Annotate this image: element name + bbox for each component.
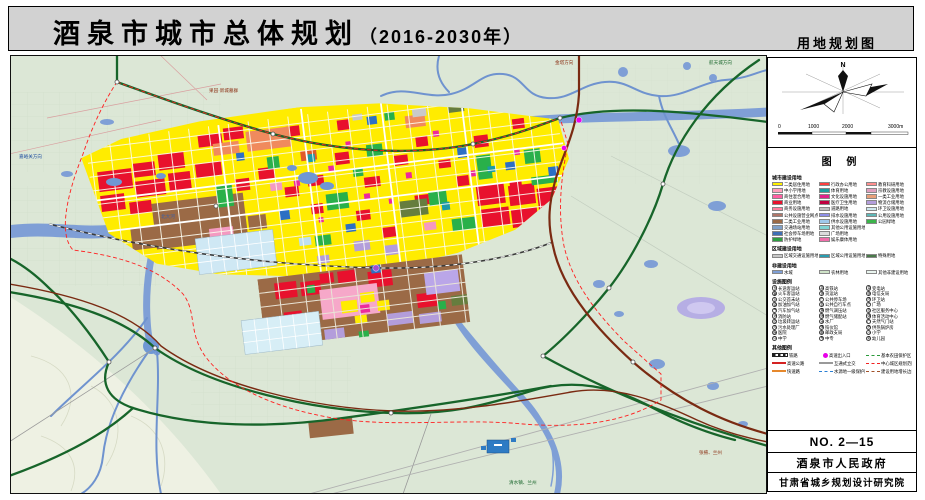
facility-icon: 幼 [866, 336, 871, 341]
legend-swatch [772, 237, 783, 242]
legend-item: 区域公用设施用地 [819, 253, 865, 259]
scale-tick-2: 2000 [842, 124, 853, 130]
line-sample [866, 355, 880, 356]
facility-icon: 油 [772, 302, 777, 307]
legend-item: 其他非建设用地 [866, 269, 912, 275]
nonconstruction-legend: 水域农林用地其他非建设用地 [772, 269, 912, 275]
map-label: 嘉峪关方向 [19, 153, 42, 160]
section-urban-landuse: 城市建设用地 [772, 173, 802, 180]
government-name: 酒泉市人民政府 [768, 452, 916, 472]
facility-icon: 货 [819, 291, 824, 296]
section-nonconstruction: 非建设用地 [772, 261, 797, 268]
facility-icon: 垃 [772, 319, 777, 324]
scale-tick-0: 0 [778, 124, 781, 130]
facility-legend-item: 幼幼儿园 [866, 336, 912, 342]
legend-swatch [772, 182, 783, 187]
legend-swatch [819, 219, 830, 224]
legend-swatch [772, 188, 783, 193]
section-facilities: 设施图例 [772, 278, 792, 285]
legend-item: 特殊用地 [866, 253, 912, 259]
legend-panel: N 0 1000 2000 3000m 图 例 城市建设用地 二类居住用地中小学… [767, 57, 917, 492]
legend-swatch [866, 182, 877, 187]
facility-icon: 信 [866, 291, 871, 296]
legend-swatch [772, 200, 783, 205]
facility-icon: 广 [866, 302, 871, 307]
section-regional-landuse: 区域建设用地 [772, 245, 802, 252]
legend-title: 图 例 [768, 148, 916, 171]
drawing-number: NO. 2—15 [768, 430, 916, 452]
legend-swatch [866, 188, 877, 193]
map-label: 果园·新城墓群 [209, 87, 238, 94]
map-canvas: 嘉峪关方向果园·新城墓群金塔方向航天城方向张掖、兰州清水镇、兰州北大河 [10, 55, 767, 494]
line-sample [819, 371, 833, 372]
compass-section: N 0 1000 2000 3000m [768, 58, 916, 148]
lavender-lake [677, 297, 725, 319]
title-years: （2016-2030年） [359, 27, 523, 47]
map-label: 金塔方向 [555, 59, 574, 66]
line-legend-item: 水源地一级保护区 [819, 367, 865, 375]
line-legend-item: 高速出入口 [819, 351, 865, 359]
legend-swatch [819, 270, 830, 275]
map-type-label: 用地规划图 [797, 33, 877, 52]
legend-swatch [819, 237, 830, 242]
north-compass: N [772, 58, 914, 116]
scale-tick-1: 1000 [808, 124, 819, 130]
legend-swatch [819, 182, 830, 187]
legend-swatch [772, 219, 783, 224]
line-legend-item: 基本农田保护区 [866, 351, 912, 359]
line-sample [866, 363, 880, 364]
scale-bar: 0 1000 2000 3000m [772, 121, 914, 142]
legend-swatch [772, 270, 783, 275]
legend-item: 农林用地 [819, 269, 865, 275]
legend-swatch [819, 200, 830, 205]
legend-swatch [866, 213, 877, 218]
lines-legend: 铁路高速公路快速路高速出入口互通式立交水源地一级保护区基本农田保护区中心城区规划… [772, 351, 912, 375]
legend-swatch [772, 225, 783, 230]
scale-tick-3: 3000m [888, 124, 903, 130]
legend-swatch [819, 194, 830, 199]
facility-icon: 客 [772, 291, 777, 296]
facility-icon: 门 [866, 319, 871, 324]
title-band: 酒泉市城市总体规划（2016-2030年） 用地规划图 [8, 6, 914, 51]
line-sample [819, 362, 833, 364]
legend-item: 公园绿地 [866, 218, 912, 224]
facility-icon: 小 [866, 330, 871, 335]
title-text: 酒泉市城市总体规划 [53, 19, 359, 49]
page-title: 酒泉市城市总体规划（2016-2030年） [53, 12, 523, 51]
facility-icon: 自 [819, 302, 824, 307]
legend-swatch [819, 225, 830, 230]
line-sample [772, 370, 786, 372]
facility-icon: 中 [772, 336, 777, 341]
facility-icon: 专 [819, 336, 824, 341]
facility-icon: 医 [772, 330, 777, 335]
legend-swatch [772, 254, 783, 259]
legend-swatch [819, 188, 830, 193]
line-sample [823, 353, 828, 358]
map-label: 航天城方向 [709, 59, 732, 66]
line-sample [772, 362, 786, 364]
legend-swatch [819, 231, 830, 236]
title-blocks: NO. 2—15 酒泉市人民政府 甘肃省城乡规划设计研究院 [768, 430, 916, 491]
legend-swatch [819, 254, 830, 259]
north-label: N [840, 62, 845, 69]
landuse-legend: 二类居住用地中小学用地商住混合用地商业用地商务设施用地公共设施营业网点用地二类工… [772, 181, 912, 243]
legend-swatch [819, 207, 830, 212]
legend-swatch [772, 231, 783, 236]
map-label: 清水镇、兰州 [509, 479, 537, 486]
legend-swatch [772, 207, 783, 212]
facility-legend-item: 专中专 [819, 336, 865, 342]
line-legend-item: 互通式立交 [819, 359, 865, 367]
legend-item: 水域 [772, 269, 818, 275]
legend-item: 区域交通设施用地 [772, 253, 818, 259]
legend-swatch [772, 194, 783, 199]
map-label: 张掖、兰州 [699, 449, 722, 456]
legend-swatch [866, 270, 877, 275]
facility-legend-item: 中中学 [772, 336, 818, 342]
line-legend-item: 中心城区规划范围 [866, 359, 912, 367]
facility-icon: 邮 [819, 330, 824, 335]
line-sample [772, 353, 788, 357]
legend-swatch [866, 200, 877, 205]
legend-swatch [866, 194, 877, 199]
section-lines: 其他图例 [772, 344, 792, 351]
line-legend-item: 建设用地增长边界 [866, 367, 912, 375]
legend-swatch [866, 219, 877, 224]
facilities-legend: 长长途客运站客火车客运站公公交首末站油加油加气站气汽车加气站消消防站垃垃圾转运站… [772, 285, 912, 341]
legend-swatch [819, 213, 830, 218]
line-legend-item: 快速路 [772, 367, 818, 375]
line-legend-item: 高速公路 [772, 359, 818, 367]
landuse-map: 嘉峪关方向果园·新城墓群金塔方向航天城方向张掖、兰州清水镇、兰州北大河 [11, 56, 766, 493]
regional-legend: 区域交通设施用地区域公用设施用地特殊用地 [772, 253, 912, 259]
legend-swatch [772, 213, 783, 218]
line-sample [866, 371, 880, 372]
legend-swatch [866, 254, 877, 259]
plan-sheet: 酒泉市城市总体规划（2016-2030年） 用地规划图 [0, 0, 925, 500]
institute-name: 甘肃省城乡规划设计研究院 [768, 472, 916, 491]
facility-icon: 水 [819, 319, 824, 324]
line-legend-item: 铁路 [772, 351, 818, 359]
map-label: 北大河 [161, 213, 175, 220]
legend-swatch [866, 207, 877, 212]
legend-item: 娱乐康体用地 [819, 237, 865, 243]
legend-item: 防护绿地 [772, 237, 818, 243]
